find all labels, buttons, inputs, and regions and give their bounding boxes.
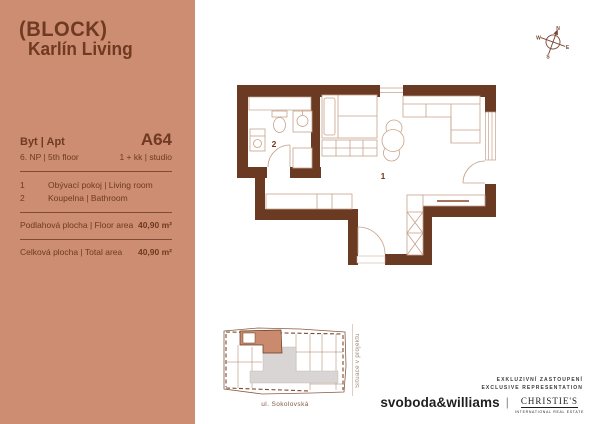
brochure-page: (BLOCK) Karlín Living Byt | Apt A64 6. N…: [0, 0, 600, 424]
wardrobe-icon: [407, 195, 423, 255]
shower-icon: [293, 148, 312, 168]
siteplan-caption: Situace v projektu: [355, 322, 361, 400]
kitchen-counter-left: [266, 194, 352, 209]
room2-plan-label: 2: [272, 139, 277, 149]
compass-e: E: [566, 45, 570, 51]
floor-plan: 1 2: [237, 85, 496, 265]
christies-subline: INTERNATIONAL REAL ESTATE: [515, 410, 584, 414]
bathroom-fixtures: [250, 111, 312, 168]
dining-set-icon: [382, 120, 404, 161]
room1-plan-label: 1: [381, 171, 386, 181]
compass-icon: N E S W: [536, 25, 570, 61]
representation-line-cz: EXKLUZIVNÍ ZASTOUPENÍ: [481, 377, 583, 385]
compass-w: W: [536, 36, 541, 42]
bed-icon: [322, 95, 377, 138]
christies-wordmark: CHRISTIE'S: [521, 396, 578, 408]
compass-n: N: [556, 26, 560, 32]
logo-separator: |: [506, 395, 509, 409]
sofa-icon: [403, 96, 480, 143]
street-caption: ul. Sokolovská: [222, 401, 348, 408]
compass-s: S: [546, 55, 550, 61]
bathroom-niche: [249, 97, 311, 110]
agency-logos: svoboda&williams | CHRISTIE'S INTERNATIO…: [380, 391, 584, 414]
site-plan: [224, 328, 346, 394]
sideboard-icon: [322, 140, 377, 156]
christies-logo: CHRISTIE'S INTERNATIONAL REAL ESTATE: [515, 391, 584, 414]
site-unit-notch: [243, 333, 255, 343]
drawing-layer: N E S W: [0, 0, 600, 424]
caption-rule: [352, 324, 353, 396]
svoboda-williams-logo: svoboda&williams: [380, 395, 499, 410]
toilet-icon: [272, 111, 287, 117]
kitchen-counter-right: [422, 195, 485, 206]
